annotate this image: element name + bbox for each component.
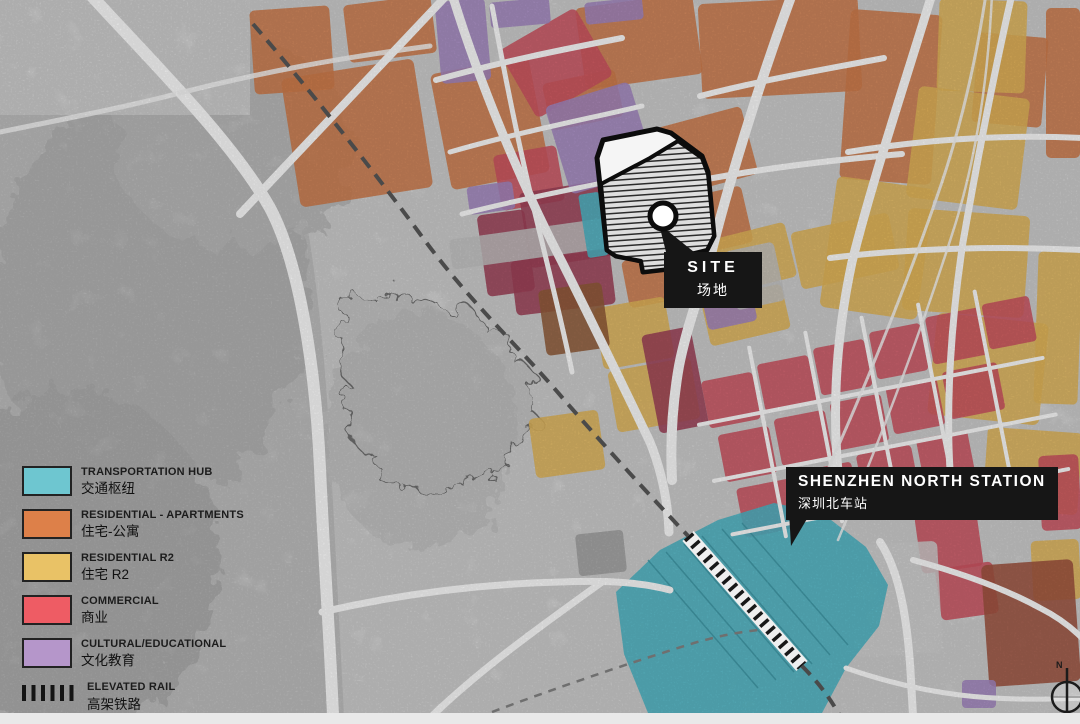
map-legend: TRANSPORTATION HUB 交通枢纽 RESIDENTIAL - AP… <box>22 466 244 724</box>
legend-label-en: ELEVATED RAIL <box>87 681 175 694</box>
legend-item-transportation-hub: TRANSPORTATION HUB 交通枢纽 <box>22 466 244 498</box>
legend-item-residential-apartments: RESIDENTIAL - APARTMENTS 住宅-公寓 <box>22 509 244 541</box>
legend-label-zh: 住宅-公寓 <box>81 524 244 541</box>
legend-swatch-cultural-educational <box>22 638 72 668</box>
legend-label-en: RESIDENTIAL - APARTMENTS <box>81 509 244 522</box>
legend-swatch-commercial <box>22 595 72 625</box>
compass-n-label: N <box>1056 660 1063 670</box>
legend-item-cultural-educational: CULTURAL/EDUCATIONAL 文化教育 <box>22 638 244 670</box>
station-callout-subtitle: 深圳北车站 <box>798 493 1046 512</box>
legend-swatch-residential-r2 <box>22 552 72 582</box>
site-callout-title: SITE <box>668 259 758 277</box>
legend-label-zh: 交通枢纽 <box>81 481 213 498</box>
legend-label-en: RESIDENTIAL R2 <box>81 552 174 565</box>
legend-item-residential-r2: RESIDENTIAL R2 住宅 R2 <box>22 552 244 584</box>
legend-swatch-elevated-rail-icon <box>22 685 78 701</box>
legend-swatch-transportation-hub <box>22 466 72 496</box>
legend-label-zh: 高架铁路 <box>87 697 175 714</box>
legend-label-en: CULTURAL/EDUCATIONAL <box>81 638 226 651</box>
legend-label-en: TRANSPORTATION HUB <box>81 466 213 479</box>
legend-item-commercial: COMMERCIAL 商业 <box>22 595 244 627</box>
legend-label-zh: 住宅 R2 <box>81 567 174 584</box>
site-callout-subtitle: 场地 <box>668 280 758 300</box>
legend-label-zh: 商业 <box>81 610 159 627</box>
legend-item-elevated-rail: ELEVATED RAIL 高架铁路 <box>22 681 244 713</box>
station-callout-title: SHENZHEN NORTH STATION <box>798 473 1046 491</box>
site-point-icon <box>650 203 676 229</box>
legend-label-zh: 文化教育 <box>81 653 226 670</box>
site-callout: SITE 场地 <box>664 252 762 308</box>
station-callout: SHENZHEN NORTH STATION 深圳北车站 <box>786 467 1058 520</box>
legend-label-en: COMMERCIAL <box>81 595 159 608</box>
legend-swatch-residential-apartments <box>22 509 72 539</box>
